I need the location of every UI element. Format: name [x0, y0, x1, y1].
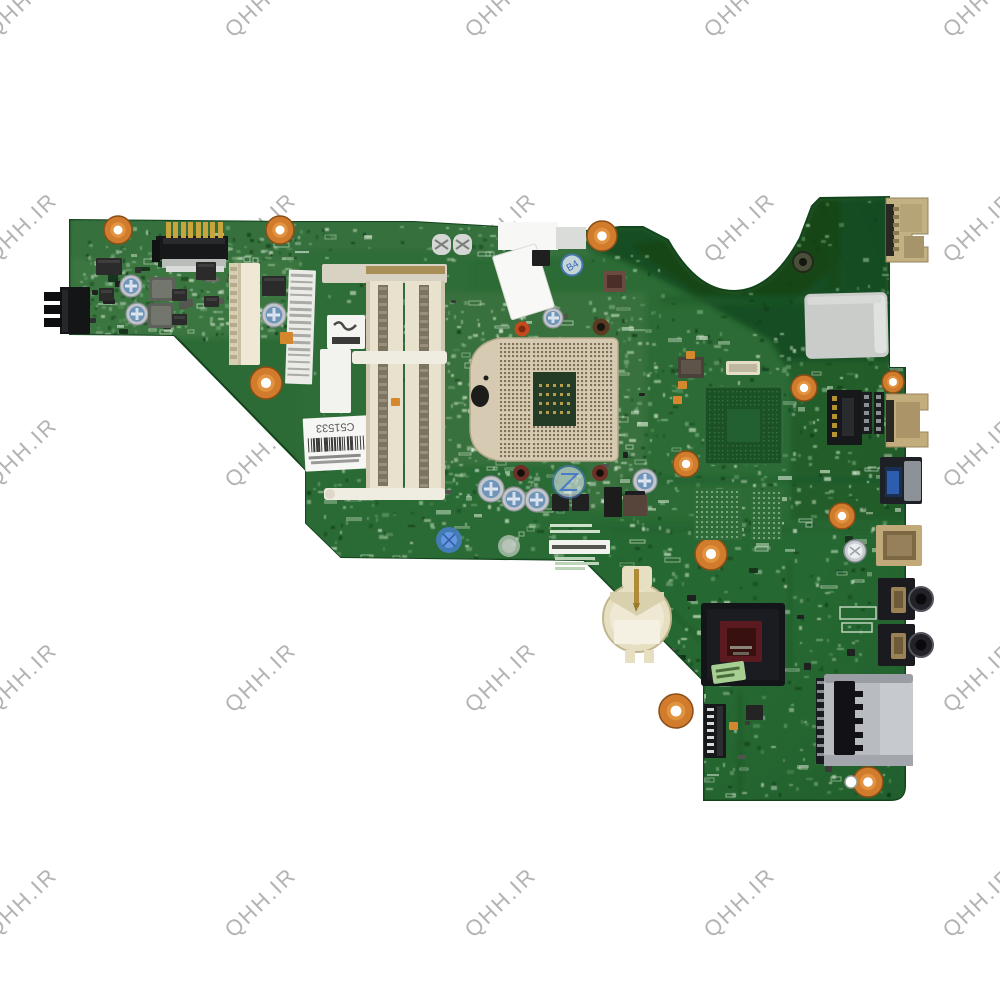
svg-text:C51533: C51533 — [316, 420, 355, 434]
